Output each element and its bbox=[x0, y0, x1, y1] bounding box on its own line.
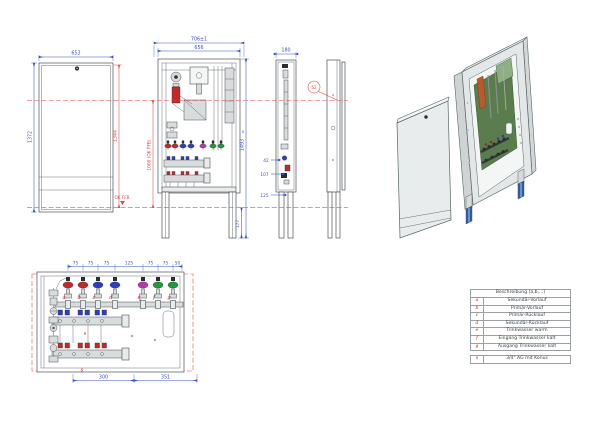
iso-cabinet-body bbox=[454, 37, 536, 224]
front-view: 653 1372 1344 OK FFB bbox=[28, 51, 130, 213]
svg-text:50: 50 bbox=[175, 261, 181, 267]
drawing-sheet: 653 1372 1344 OK FFB bbox=[0, 0, 600, 421]
port-label-s1: s bbox=[84, 331, 87, 337]
dim-side-125: 125 bbox=[260, 193, 268, 199]
iso-lock-icon bbox=[424, 115, 427, 118]
legend-footer-row: s 3/4" AG mit Konus bbox=[470, 355, 571, 364]
pump-icon bbox=[171, 72, 181, 103]
svg-text:75: 75 bbox=[104, 261, 110, 267]
svg-text:300: 300 bbox=[99, 375, 108, 381]
svg-text:c: c bbox=[93, 295, 96, 301]
side-view: 180 42 107 125 bbox=[260, 48, 298, 239]
svg-text:75: 75 bbox=[88, 261, 94, 267]
legend-row: e Trinkwasser warm bbox=[470, 328, 571, 336]
floor-datum-label: OK FFB bbox=[114, 195, 129, 200]
svg-text:75: 75 bbox=[73, 261, 79, 267]
dim-front-width: 653 bbox=[71, 51, 80, 57]
svg-text:a: a bbox=[62, 295, 65, 301]
dim-leg-height: 177 bbox=[235, 220, 241, 228]
detail-view: 75 75 75 125 75 75 50 a b c d e f g bbox=[32, 261, 197, 384]
dim-side-107: 107 bbox=[260, 172, 268, 178]
svg-text:351: 351 bbox=[161, 375, 170, 381]
isometric-view bbox=[397, 37, 536, 238]
legend-row: c Primär-Rücklauf bbox=[470, 313, 571, 321]
iso-door-panel bbox=[397, 97, 451, 238]
break-mark: × bbox=[241, 129, 245, 134]
legend-row: f Eingang Trinkwasser kalt bbox=[470, 336, 571, 344]
dim-manifold-height: 1000 (OK FFB) bbox=[146, 139, 152, 170]
detail-top-dims: 75 75 75 125 75 75 50 bbox=[68, 261, 182, 272]
dim-cabinet-height: 1493 bbox=[240, 139, 246, 151]
legend-row: a Sekundär-Vorlauf bbox=[470, 298, 571, 306]
dim-side-depth: 180 bbox=[281, 48, 290, 54]
callout-number: 52 bbox=[311, 85, 317, 90]
dim-front-height: 1372 bbox=[28, 131, 34, 143]
svg-text:125: 125 bbox=[125, 261, 133, 267]
dim-cabinet-width-outer: 706±1 bbox=[191, 37, 207, 43]
legend-table: Beschreibung (a,b,...) a Sekundär-Vorlau… bbox=[470, 289, 571, 364]
svg-text:75: 75 bbox=[148, 261, 154, 267]
legend-header: Beschreibung (a,b,...) bbox=[470, 289, 571, 298]
door-side-view: 52 bbox=[308, 60, 345, 238]
legend-row: g Ausgang Trinkwasser kalt bbox=[470, 344, 571, 352]
svg-text:75: 75 bbox=[163, 261, 169, 267]
dim-side-42: 42 bbox=[263, 158, 269, 164]
port-label-s2: s bbox=[81, 368, 84, 374]
detail-bottom-dims: 300 351 bbox=[73, 374, 197, 383]
datum-triangle-icon bbox=[120, 201, 125, 205]
dim-front-height-inner: 1344 bbox=[113, 130, 119, 142]
dim-cabinet-width-inner: 656 bbox=[194, 45, 203, 51]
svg-text:b: b bbox=[77, 295, 80, 301]
